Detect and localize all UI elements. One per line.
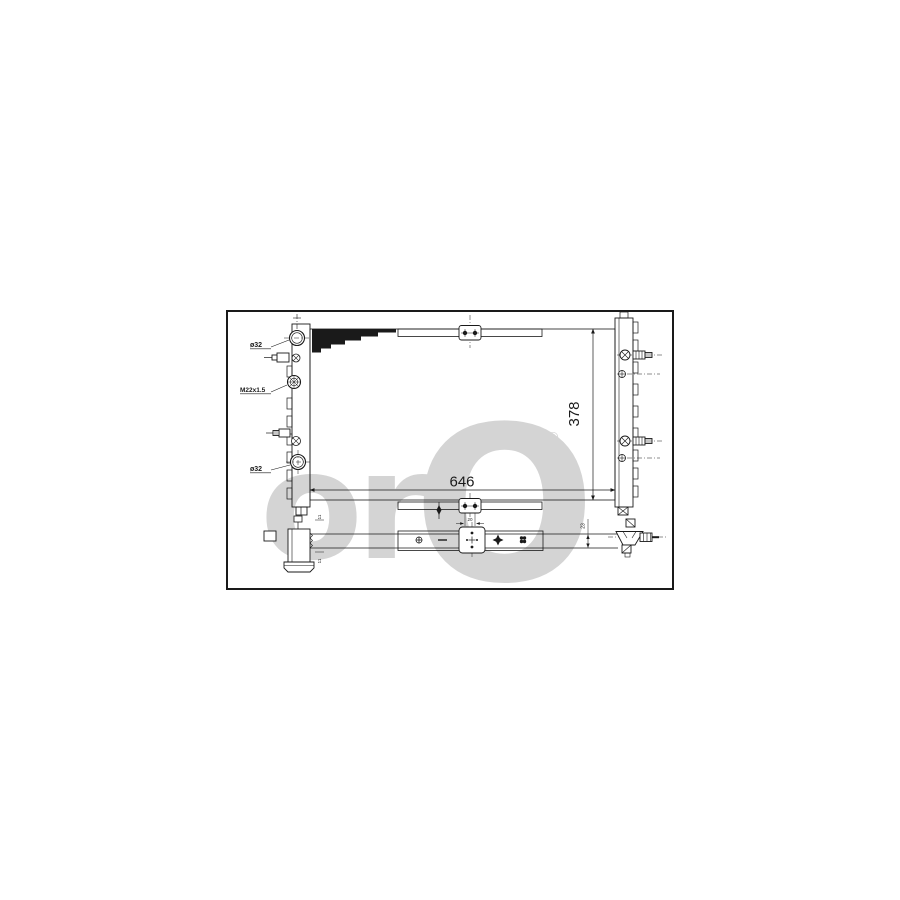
bottom-right-connector <box>608 519 666 557</box>
left-tank-foot <box>296 507 307 515</box>
inlet-diameter-label: ø32 <box>250 342 262 349</box>
right-tank <box>615 312 638 515</box>
bracket-hole-spacing-value: 20 <box>467 517 473 522</box>
inlet-pipe <box>264 314 310 362</box>
left-tank <box>287 324 310 515</box>
dimension-core-height: 378 <box>566 329 593 500</box>
dimension-pipe-offsets: 11 11 <box>315 514 324 563</box>
core-width-value: 646 <box>449 474 474 491</box>
outlet-diameter-label: ø32 <box>250 466 262 473</box>
core-height-value: 378 <box>566 401 583 426</box>
outlet-elbow <box>264 516 314 572</box>
outlet-pipe <box>266 429 310 474</box>
bottom-center-plate <box>459 522 485 559</box>
pipe-offset-bottom-value: 11 <box>317 558 322 563</box>
top-mount-bracket <box>398 315 542 348</box>
drawing-svg: 646 378 20 ø32 M22x1.5 ø32 <box>226 310 674 590</box>
connector-offset-value: 23 <box>581 523 587 529</box>
bottom-mount-bracket <box>398 493 542 519</box>
pipe-offset-top-value: 11 <box>317 514 322 519</box>
page-canvas: or O ® <box>0 0 900 900</box>
right-connector-cross-top <box>617 370 660 378</box>
right-connector-bottom <box>617 436 663 446</box>
right-connector-cross-bottom <box>617 454 660 462</box>
right-connector-top <box>617 350 663 360</box>
mount-symbol-cross-flower <box>416 537 423 544</box>
filler-neck <box>288 376 301 389</box>
filler-thread-label: M22x1.5 <box>240 387 266 394</box>
mount-symbol-clover <box>520 536 526 543</box>
dimension-core-width: 646 <box>310 474 615 491</box>
radiator-technical-drawing: 646 378 20 ø32 M22x1.5 ø32 <box>226 310 674 590</box>
mount-symbol-star <box>493 535 504 546</box>
dimension-connector-offset: 23 <box>581 519 589 548</box>
section-hatch-wedge <box>312 329 396 353</box>
